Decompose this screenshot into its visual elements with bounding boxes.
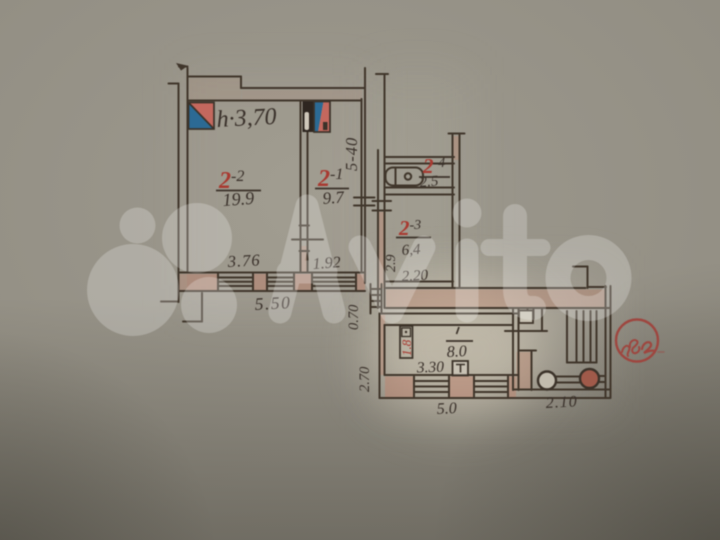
svg-text:5-40: 5-40 xyxy=(342,137,361,171)
svg-text:2-3: 2-3 xyxy=(398,216,421,240)
svg-text:8.0: 8.0 xyxy=(446,343,467,361)
svg-text:3.76: 3.76 xyxy=(226,250,261,271)
svg-text:2.9: 2.9 xyxy=(384,255,399,273)
svg-text:3.30: 3.30 xyxy=(416,359,445,377)
svg-text:0.70: 0.70 xyxy=(346,304,362,330)
svg-text:5.0: 5.0 xyxy=(436,400,457,418)
svg-text:h·3,70: h·3,70 xyxy=(216,104,277,133)
svg-text:2.10: 2.10 xyxy=(545,393,578,412)
svg-text:2.70: 2.70 xyxy=(357,366,373,392)
svg-text:1.8: 1.8 xyxy=(399,339,414,356)
